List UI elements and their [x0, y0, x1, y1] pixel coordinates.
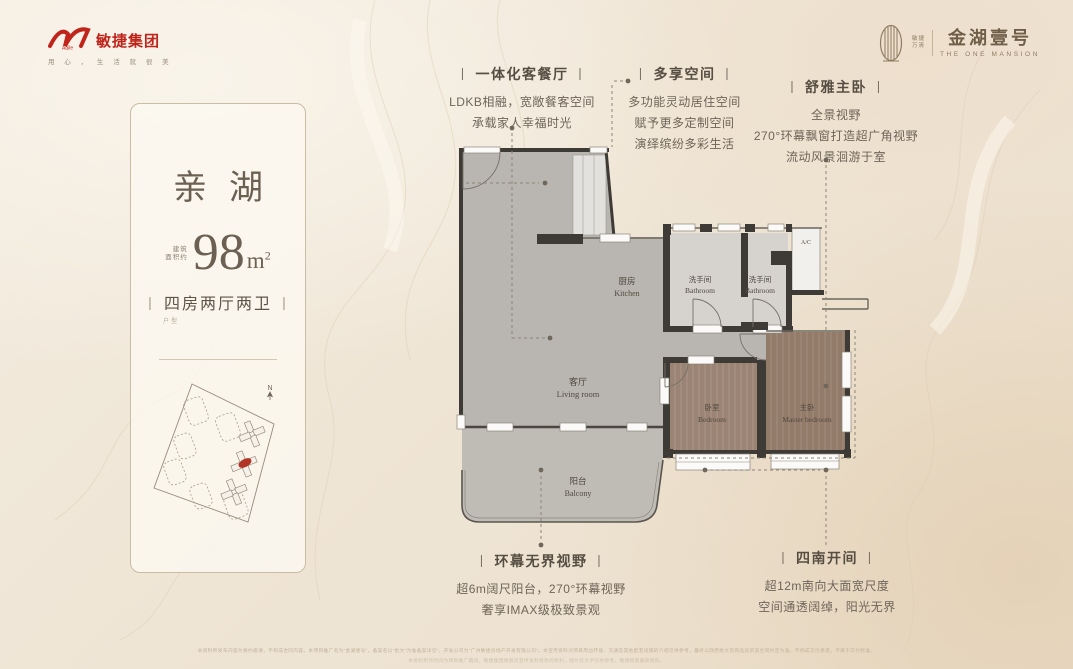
area-value: 98 [193, 231, 245, 275]
brand-right: 敏捷 万清 金湖壹号 THE ONE MANSION [877, 22, 1040, 64]
kitchen-label-zh: 厨房 [618, 276, 635, 286]
card-divider [159, 359, 277, 360]
brand-right-divider [932, 30, 933, 56]
annotation-master: 丨舒雅主卧丨 全景视野 270°环幕飘窗打造超广角视野 流动风景洄游于室 [736, 77, 936, 168]
area-label: 建筑 面积约 [165, 246, 188, 262]
brand-left-name: 敏捷集团 [96, 34, 160, 50]
ac-label: A/C [801, 240, 811, 246]
living-label-zh: 客厅 [569, 376, 587, 387]
bathroom2-label-en: Bathroom [745, 286, 775, 295]
master-label-zh: 主卧 [800, 402, 815, 412]
annotation-view: 丨环幕无界视野丨 超6m阔尺阳台，270°环幕视野 奢享IMAX级极致景观 [431, 551, 651, 621]
unit-layout-note: 户型 [163, 316, 305, 325]
poster-page: Agile 敏捷集团 用 心 ， 生 活 就 很 美 敏捷 万清 金湖壹号 TH… [0, 0, 1073, 669]
mansion-emblem-icon [877, 22, 905, 64]
area-unit: m2 [247, 248, 271, 274]
bathroom1-label-zh: 洗手间 [689, 274, 712, 284]
kitchen-label-en: Kitchen [614, 289, 639, 298]
disclaimer-line1: 本资料所发布内容为要约邀请，不构成合同内容。本项目推广名为“金湖壹号”，备案名以… [27, 647, 1046, 654]
project-name: 金湖壹号 [948, 29, 1032, 48]
disclaimer-line2: 本资料制作时间为项目推广期间，敏捷集团保留对宣传资料修改的权利，图片及文字仅供参… [27, 657, 1046, 664]
master-label-en: Master bedroom [782, 415, 832, 424]
unit-info-card: 亲湖 建筑 面积约 98 m2 丨四房两厅两卫丨 户型 [130, 103, 306, 573]
bathroom2-label-zh: 洗手间 [749, 274, 772, 284]
north-compass: N [267, 385, 272, 400]
brand-left-tagline: 用 心 ， 生 活 就 很 美 [48, 56, 173, 66]
disclaimer: 本资料所发布内容为要约邀请，不构成合同内容。本项目推广名为“金湖壹号”，备案名以… [0, 647, 1073, 664]
project-name-en: THE ONE MANSION [940, 51, 1040, 58]
unit-area: 建筑 面积约 98 m2 [131, 231, 305, 275]
ac-platform [792, 228, 820, 293]
brand-right-stack-bottom: 万清 [912, 43, 925, 50]
brand-left: Agile 敏捷集团 用 心 ， 生 活 就 很 美 [48, 24, 173, 66]
bathroom1-label-en: Bathroom [685, 286, 715, 295]
balcony-label-zh: 阳台 [569, 476, 586, 486]
living-label-en: Living room [557, 389, 600, 399]
closet [573, 155, 606, 235]
agile-logo-sub: Agile [62, 46, 73, 51]
corridor-floor [663, 332, 766, 360]
brand-right-stack: 敏捷 万清 [912, 36, 925, 50]
unit-layout: 丨四房两厅两卫丨 [131, 290, 305, 314]
agile-logo-icon: Agile [48, 24, 92, 50]
svg-text:N: N [267, 385, 272, 392]
bedroom-label-en: Bedroom [698, 415, 726, 424]
balcony-floor [462, 427, 663, 522]
bedroom-label-zh: 卧室 [705, 402, 720, 412]
unit-title: 亲湖 [131, 160, 305, 209]
brand-right-stack-top: 敏捷 [912, 36, 925, 43]
balcony-label-en: Balcony [565, 489, 592, 498]
annotation-south-bays: 丨四南开间丨 超12m南向大面宽尺度 空间通透阔绰，阳光无界 [727, 548, 927, 618]
annotation-dining: 丨一体化客餐厅丨 LDKB相融，宽敞餐客空间 承载家人幸福时光 [422, 64, 622, 134]
site-plan: N [131, 372, 305, 532]
